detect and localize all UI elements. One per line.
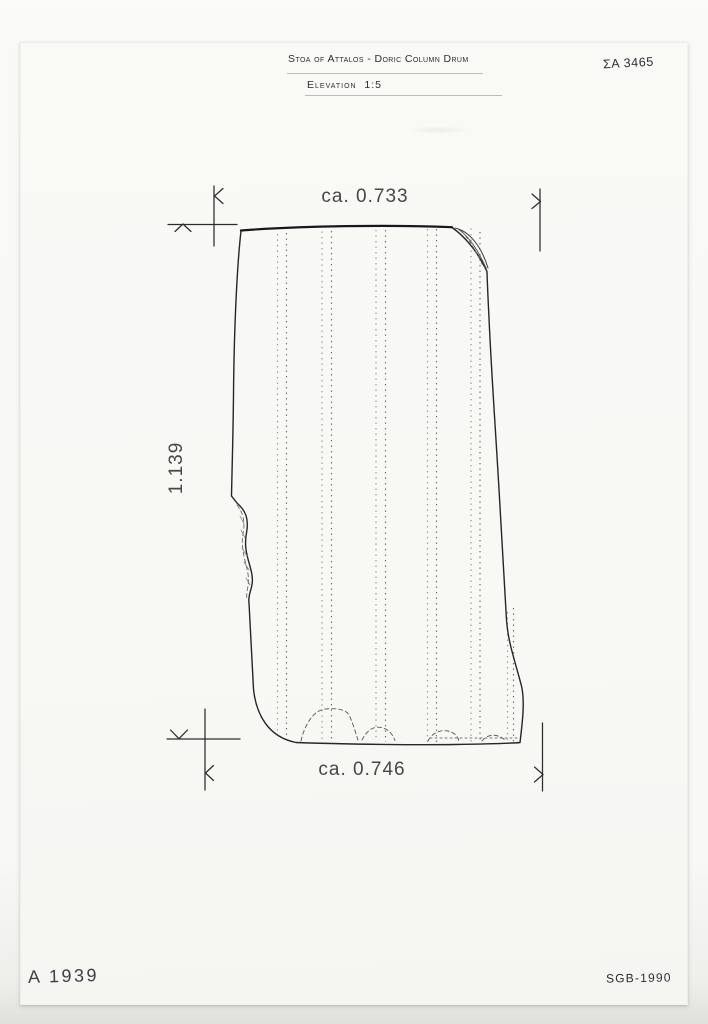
tick-arrow-top-right-icon bbox=[532, 194, 541, 209]
tick-arrow-top-left-icon bbox=[215, 189, 224, 204]
dimension-lines-height bbox=[167, 224, 240, 739]
tick-arrow-bottom-right-icon bbox=[535, 767, 544, 782]
spall-left-edge bbox=[237, 505, 250, 600]
dimension-lines-bottom-width bbox=[205, 709, 543, 791]
dimension-lines-top-width bbox=[214, 186, 541, 251]
drum-top-edge bbox=[241, 226, 452, 231]
flute-arris-dotted-lines bbox=[278, 229, 514, 744]
drawing-canvas bbox=[0, 0, 708, 1024]
tick-arrow-height-bottom-icon bbox=[171, 730, 188, 739]
scanned-drawing-sheet: Stoa of Attalos - Doric Column Drum Elev… bbox=[0, 0, 708, 1024]
weathering-bottom-edge bbox=[301, 709, 518, 742]
tick-arrow-bottom-left-icon bbox=[206, 766, 214, 781]
